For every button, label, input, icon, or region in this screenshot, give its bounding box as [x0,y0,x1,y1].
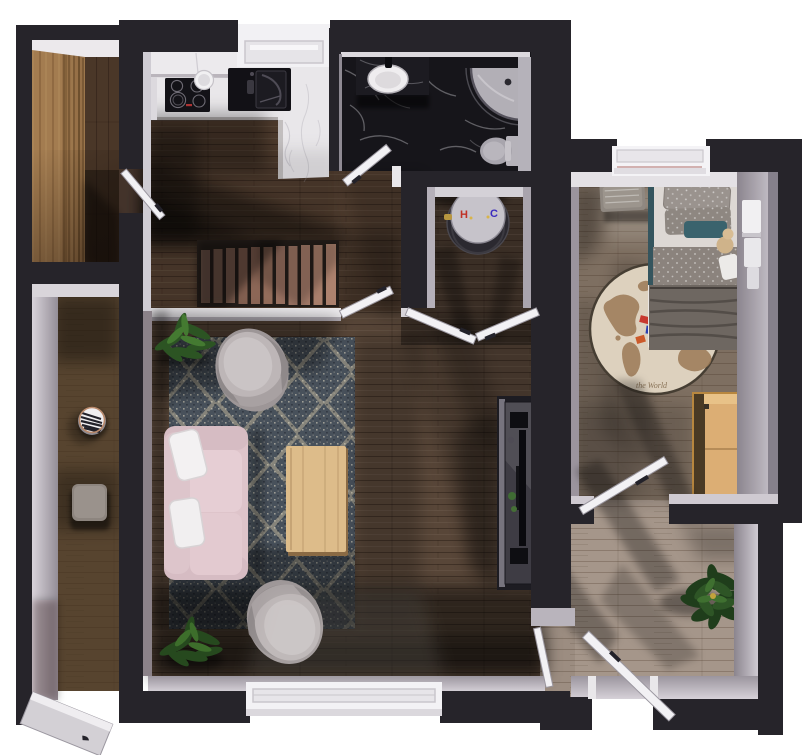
svg-text:C: C [490,208,498,220]
svg-text:H: H [460,209,468,221]
